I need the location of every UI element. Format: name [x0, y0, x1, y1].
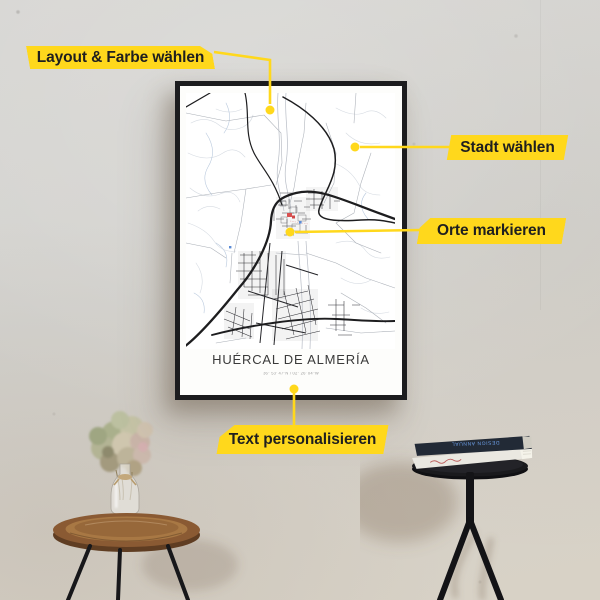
callout-orte[interactable]: Orte markieren — [419, 218, 564, 244]
map-blue-poi — [299, 221, 302, 224]
callout-stadt[interactable]: Stadt wählen — [449, 135, 566, 160]
poster-coordinates: 36° 53' 47''N / 02° 26' 04''W — [216, 372, 367, 376]
twine-bow — [118, 474, 132, 480]
callout-text-label: Text personalisieren — [229, 431, 377, 449]
book-dark-spine-title: DESIGN ANNUAL — [451, 439, 500, 447]
callout-orte-label: Orte markieren — [437, 222, 546, 240]
poster-title: HUÉRCAL DE ALMERÍA — [180, 352, 402, 367]
scene: DESIGN ANNUAL — [0, 0, 600, 600]
city-map — [186, 93, 395, 349]
stool-post — [466, 472, 474, 524]
stool: DESIGN ANNUAL — [360, 420, 560, 600]
callout-layout-label: Layout & Farbe wählen — [37, 49, 205, 67]
callout-text-personalisieren[interactable]: Text personalisieren — [219, 425, 386, 454]
poster-frame: HUÉRCAL DE ALMERÍA 36° 53' 47''N / 02° 2… — [175, 81, 407, 400]
map-blue-poi-2 — [229, 246, 231, 248]
stool-legs — [440, 520, 501, 600]
map-poster: HUÉRCAL DE ALMERÍA 36° 53' 47''N / 02° 2… — [180, 86, 402, 395]
callout-stadt-label: Stadt wählen — [460, 139, 554, 157]
table-tray — [53, 513, 200, 552]
callout-layout-farbe[interactable]: Layout & Farbe wählen — [28, 46, 213, 69]
